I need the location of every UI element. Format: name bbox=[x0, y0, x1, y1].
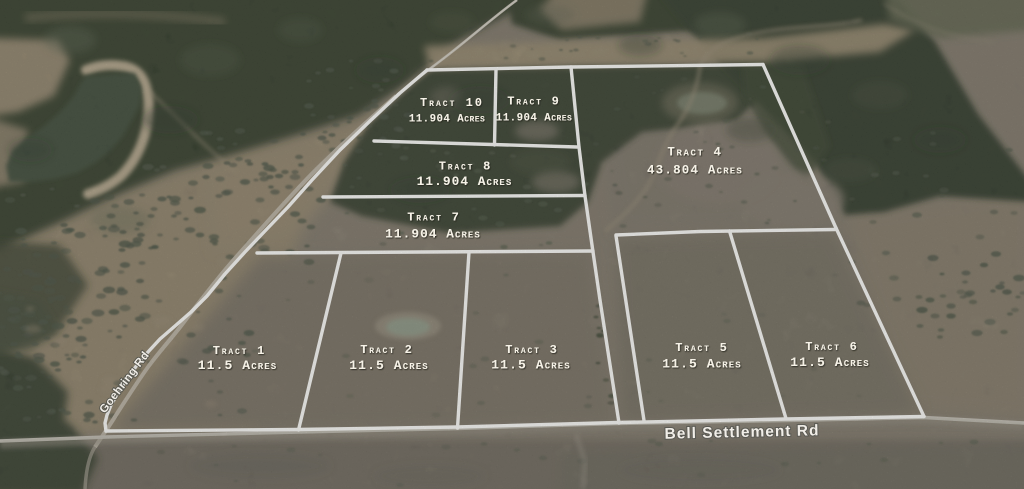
svg-text:Tract 9: Tract 9 bbox=[507, 95, 560, 109]
svg-text:Tract 3: Tract 3 bbox=[505, 343, 558, 357]
svg-text:Bell Settlement Rd: Bell Settlement Rd bbox=[664, 422, 819, 443]
svg-text:43.804 Acres: 43.804 Acres bbox=[647, 164, 743, 178]
svg-text:11.904 Acres: 11.904 Acres bbox=[409, 114, 485, 126]
svg-text:11.5 Acres: 11.5 Acres bbox=[198, 358, 277, 373]
svg-text:Tract 5: Tract 5 bbox=[675, 341, 728, 355]
svg-text:11.904 Acres: 11.904 Acres bbox=[417, 174, 513, 189]
svg-text:Tract 6: Tract 6 bbox=[805, 340, 858, 354]
svg-text:11.5 Acres: 11.5 Acres bbox=[349, 358, 428, 373]
svg-text:11.5 Acres: 11.5 Acres bbox=[790, 355, 869, 370]
svg-text:11.5 Acres: 11.5 Acres bbox=[491, 358, 570, 373]
svg-text:11.5 Acres: 11.5 Acres bbox=[662, 357, 741, 372]
svg-text:Tract 4: Tract 4 bbox=[667, 146, 722, 160]
svg-text:11.904 Acres: 11.904 Acres bbox=[496, 113, 572, 125]
svg-text:11.904 Acres: 11.904 Acres bbox=[385, 227, 481, 242]
svg-text:Tract 1: Tract 1 bbox=[213, 344, 266, 358]
svg-text:Tract 8: Tract 8 bbox=[439, 160, 492, 174]
svg-text:Tract 2: Tract 2 bbox=[360, 343, 413, 357]
svg-text:Tract 7: Tract 7 bbox=[407, 211, 460, 225]
svg-text:Tract 10: Tract 10 bbox=[420, 96, 484, 110]
